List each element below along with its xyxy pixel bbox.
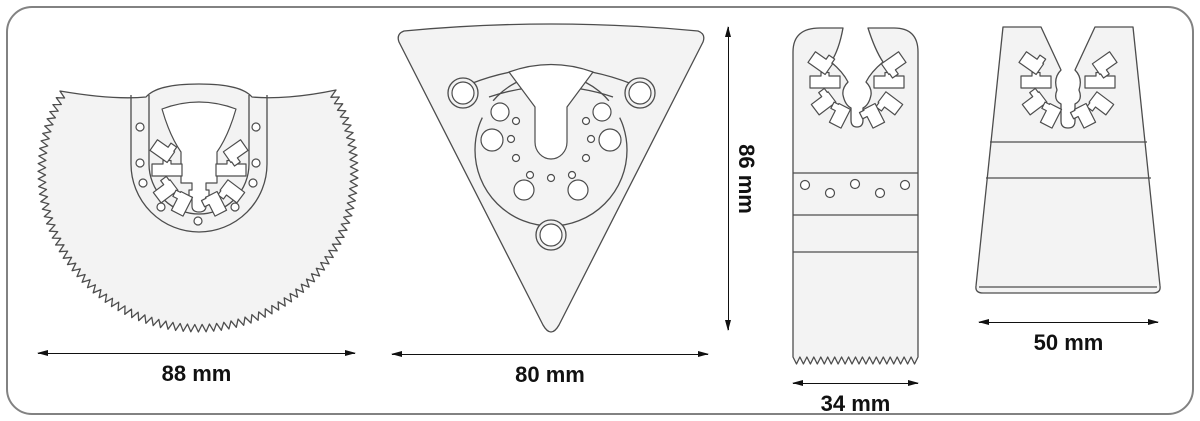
- dimension-label: 50 mm: [1034, 330, 1104, 356]
- arrowhead-up-icon: [725, 26, 731, 37]
- scraper-blade-drawing: [976, 27, 1160, 293]
- dimension-label: 34 mm: [821, 391, 891, 417]
- arrowhead-right-icon: [698, 351, 709, 357]
- dimension-label: 86 mm: [733, 144, 759, 214]
- arrowhead-down-icon: [725, 320, 731, 331]
- dimension-width-delta-pad: 80 mm: [392, 354, 708, 355]
- segment-blade-drawing: [38, 84, 358, 332]
- blade-drawings: [0, 0, 1200, 421]
- delta-pad-drawing: [398, 24, 704, 332]
- blade-dimension-diagram: 88 mm 80 mm 86 mm 34 mm 50 mm: [0, 0, 1200, 421]
- dimension-width-scraper-blade: 50 mm: [979, 322, 1158, 323]
- dimension-width-segment-blade: 88 mm: [38, 353, 355, 354]
- dimension-height-delta-pad: 86 mm: [728, 27, 729, 330]
- plunge-blade-drawing: [793, 28, 918, 364]
- arrowhead-right-icon: [908, 380, 919, 386]
- dimension-label: 88 mm: [162, 361, 232, 387]
- dimension-label: 80 mm: [515, 362, 585, 388]
- arrowhead-left-icon: [978, 319, 989, 325]
- arrowhead-right-icon: [345, 350, 356, 356]
- arrowhead-right-icon: [1148, 319, 1159, 325]
- arrowhead-left-icon: [792, 380, 803, 386]
- dimension-width-plunge-blade: 34 mm: [793, 383, 918, 384]
- arrowhead-left-icon: [391, 351, 402, 357]
- arrowhead-left-icon: [37, 350, 48, 356]
